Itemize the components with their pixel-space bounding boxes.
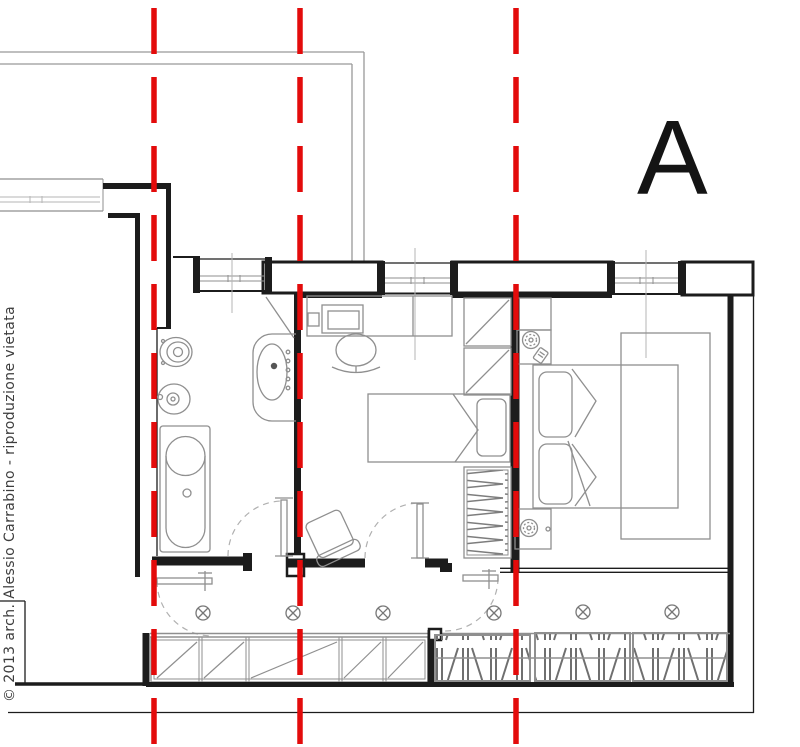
light-icon bbox=[576, 605, 590, 619]
toilet-icon bbox=[160, 338, 192, 367]
office-chair-icon bbox=[332, 334, 380, 373]
bidet-icon bbox=[158, 384, 191, 414]
desk bbox=[307, 296, 452, 336]
nightstand-top bbox=[517, 298, 551, 364]
washbasin-icon bbox=[253, 297, 296, 421]
double-bed bbox=[533, 365, 678, 508]
bedroom-window bbox=[607, 250, 686, 358]
table-lamp-icon bbox=[523, 332, 540, 349]
bathroom-door bbox=[228, 498, 293, 556]
neighbour-window bbox=[0, 179, 103, 211]
light-icon bbox=[487, 606, 501, 620]
wardrobe-hangers bbox=[464, 467, 511, 558]
pillow bbox=[539, 444, 572, 504]
bathroom-fixtures bbox=[158, 297, 297, 552]
wardrobe-shelves bbox=[464, 298, 511, 395]
louvered-shutters bbox=[435, 633, 727, 681]
balcony-strip bbox=[146, 605, 730, 686]
phone-icon bbox=[533, 347, 549, 363]
table-lamp-icon bbox=[521, 520, 538, 537]
floor-plan-screenshot: A © 2013 arch. Alessio Carrabino - ripro… bbox=[0, 0, 800, 747]
corridor-door bbox=[157, 571, 212, 636]
terrace-outline bbox=[0, 52, 364, 262]
studio-window bbox=[377, 248, 458, 360]
glazed-panels bbox=[151, 637, 428, 682]
light-icon bbox=[376, 606, 390, 620]
single-bed bbox=[368, 394, 510, 462]
light-icon bbox=[286, 606, 300, 620]
studio-furniture bbox=[301, 296, 511, 568]
top-windows bbox=[193, 248, 686, 360]
light-icon bbox=[196, 606, 210, 620]
ceiling-lights bbox=[196, 605, 679, 620]
bathroom-window bbox=[193, 253, 272, 313]
section-label: A bbox=[637, 99, 708, 217]
bathtub-icon bbox=[160, 426, 210, 552]
pillow bbox=[539, 372, 572, 437]
copyright-text: © 2013 arch. Alessio Carrabino - riprodu… bbox=[2, 306, 18, 702]
studio-door bbox=[365, 503, 429, 558]
light-icon bbox=[665, 605, 679, 619]
nightstand-bottom bbox=[515, 509, 551, 549]
floor-plan-canvas: A © 2013 arch. Alessio Carrabino - ripro… bbox=[0, 0, 800, 747]
bedroom-furniture bbox=[515, 298, 710, 549]
bedroom-door bbox=[445, 569, 498, 631]
computer-icon bbox=[308, 305, 363, 333]
